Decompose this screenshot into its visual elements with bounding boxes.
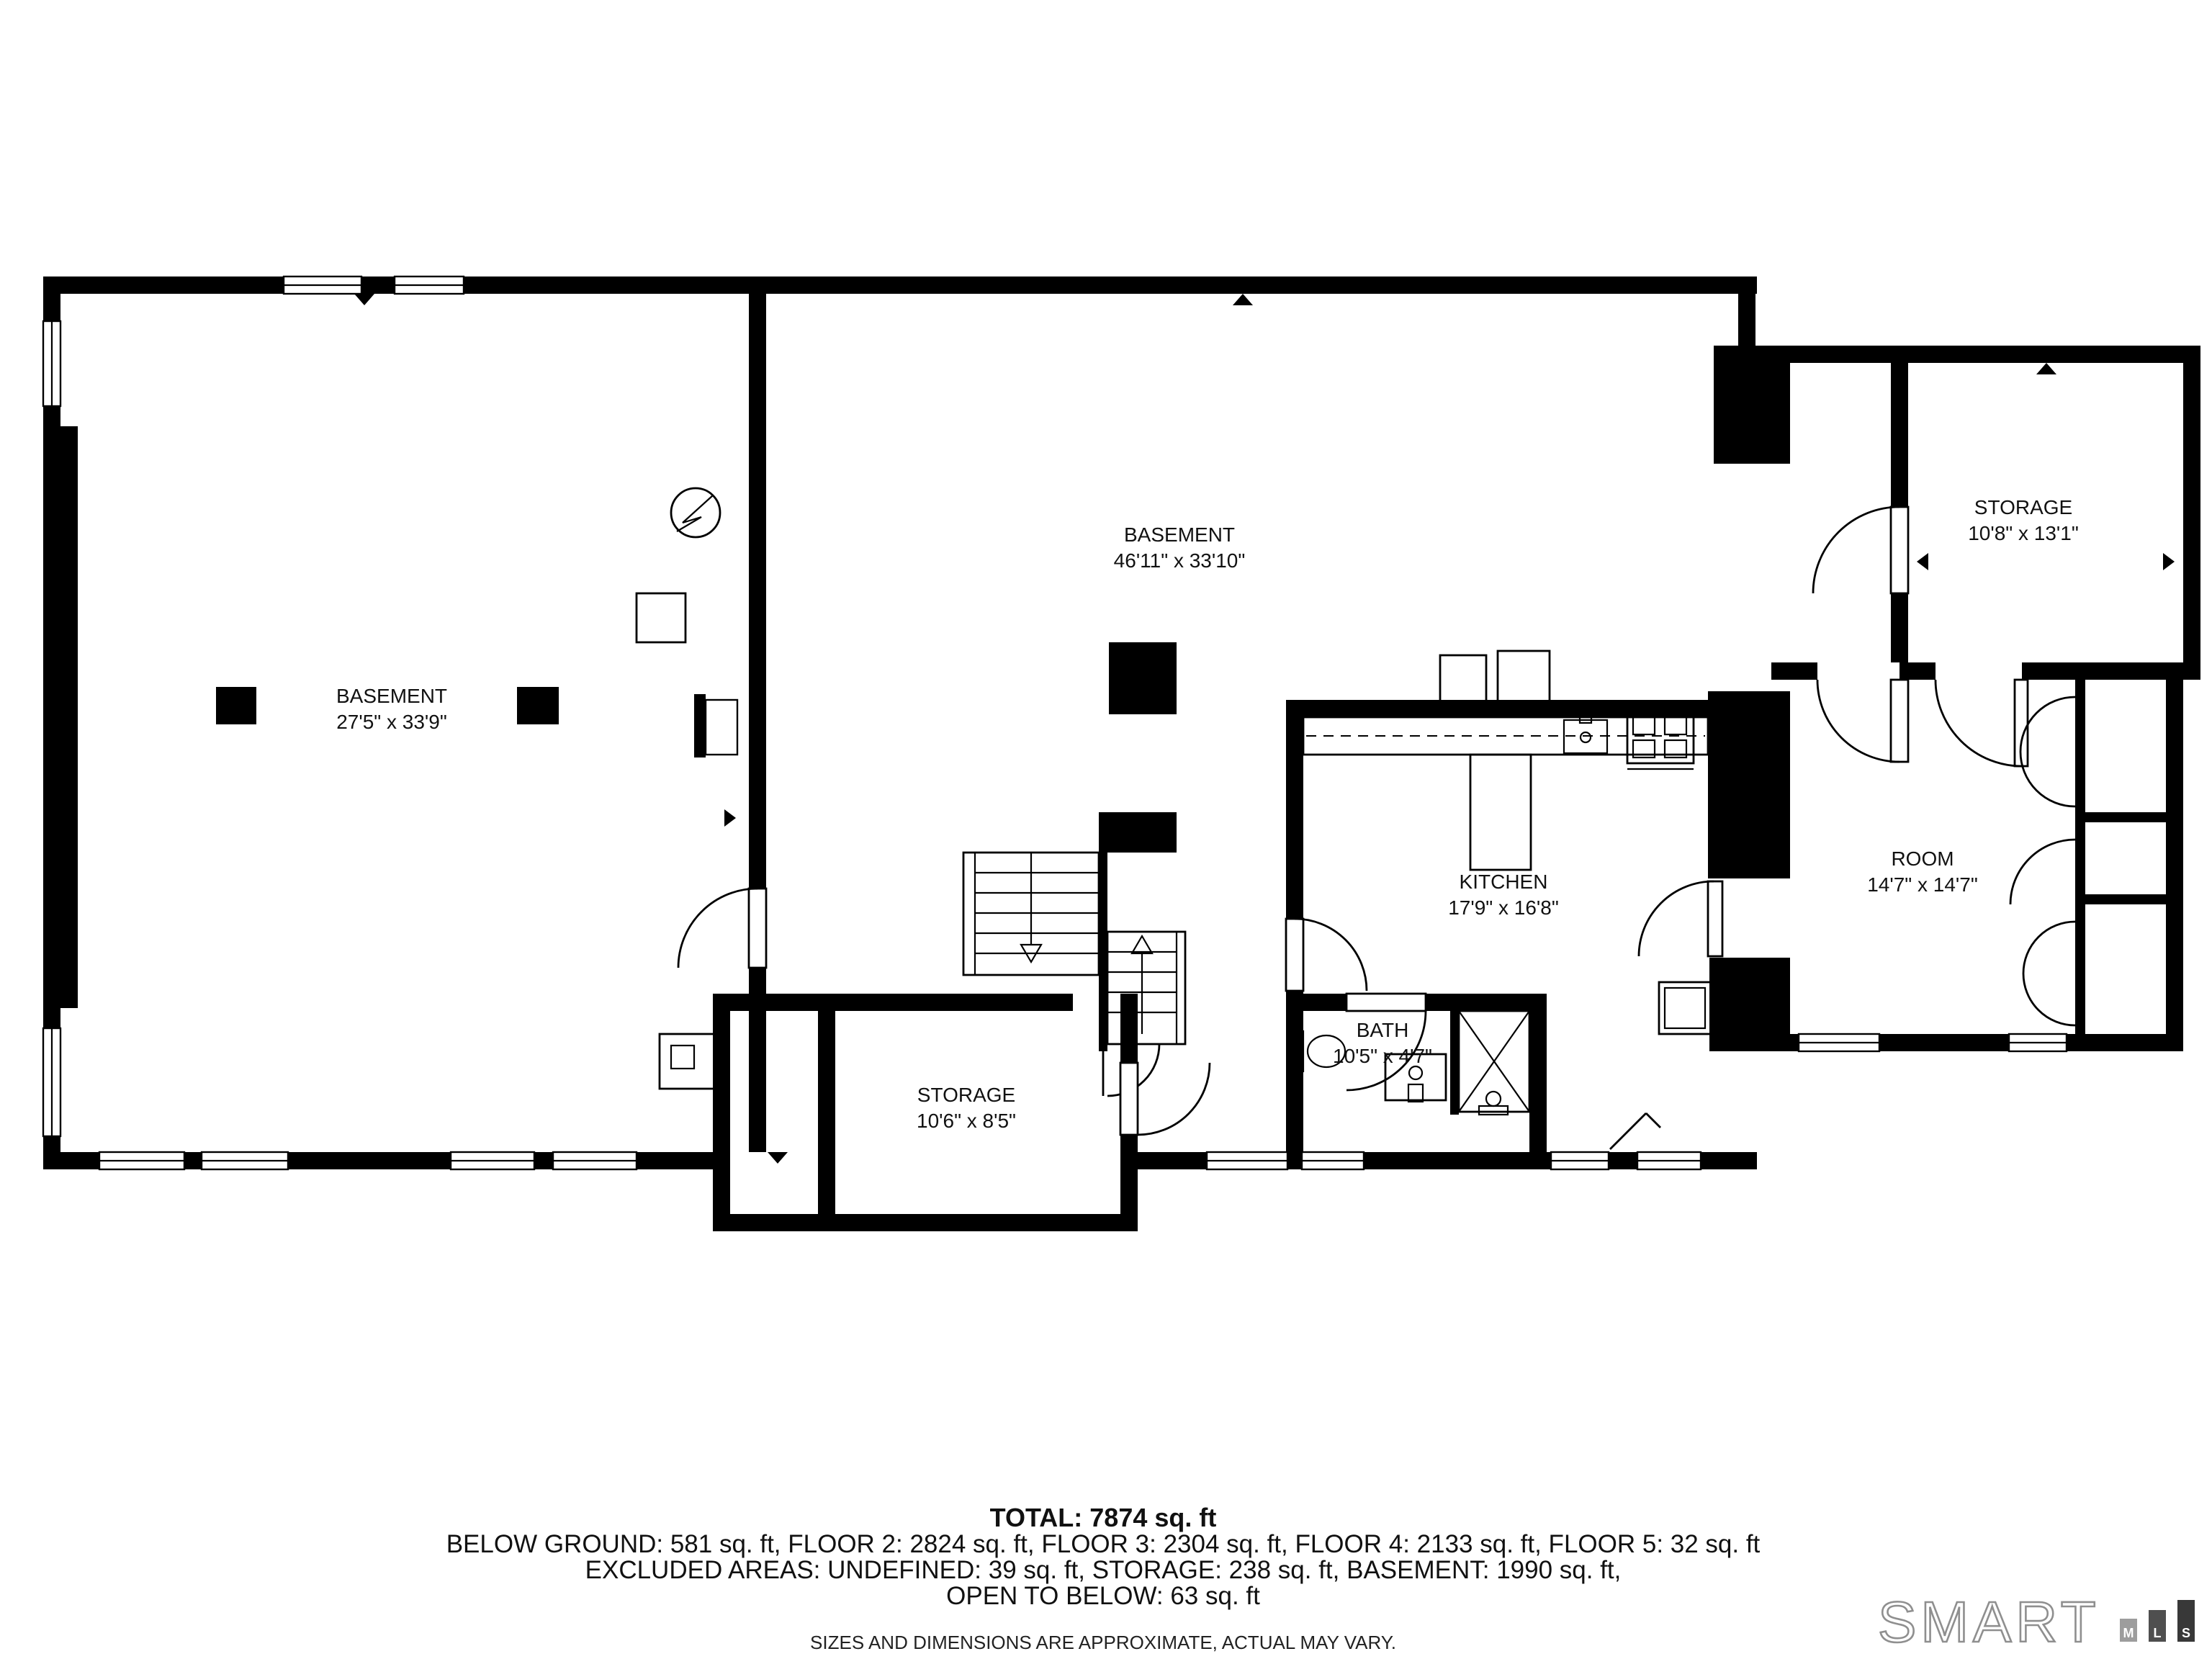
logo-brand-text: SMART (1878, 1590, 2100, 1654)
window (553, 1152, 637, 1169)
room-label-storage-lower: STORAGE (917, 1084, 1015, 1106)
window (2009, 1034, 2067, 1051)
wall-bump-top (713, 994, 1073, 1011)
room-dims-storage-upper: 10'8" x 13'1" (1968, 522, 2079, 544)
summary-excluded: EXCLUDED AREAS: UNDEFINED: 39 sq. ft, ST… (585, 1556, 1622, 1584)
window (1207, 1152, 1287, 1169)
logo-bar-s-label: S (2182, 1626, 2190, 1640)
room-dims-room: 14'7" x 14'7" (1867, 873, 1978, 896)
wall-left-chimney (43, 426, 78, 1008)
wall-stair-block (1099, 812, 1177, 853)
logo-bar-l-label: L (2154, 1626, 2162, 1640)
wall-shower-right (1529, 994, 1547, 1152)
window (43, 321, 60, 406)
wall-bath-top-a (1303, 994, 1346, 1011)
window (451, 1152, 534, 1169)
wall-storage-inner (818, 1011, 835, 1214)
summary-floors: BELOW GROUND: 581 sq. ft, FLOOR 2: 2824 … (446, 1530, 1761, 1558)
room-label-basement-left: BASEMENT (336, 685, 447, 707)
room-label-storage-upper: STORAGE (1974, 496, 2072, 518)
wall-kitchen-left-a (1286, 717, 1303, 919)
floor-plan-image: BASEMENT 27'5" x 33'9" BASEMENT 46'11" x… (0, 0, 2212, 1659)
wall-wing-right-upper (2183, 346, 2200, 680)
room-label-kitchen: KITCHEN (1460, 871, 1548, 893)
wall-wing-right-lower (2166, 662, 2183, 1051)
wall-storage-left-b (1891, 593, 1908, 662)
window (284, 276, 361, 294)
room-dims-basement-center: 46'11" x 33'10" (1114, 549, 1246, 572)
summary-total: TOTAL: 7874 sq. ft (990, 1503, 1217, 1532)
window (99, 1152, 184, 1169)
room-dims-storage-lower: 10'6" x 8'5" (917, 1110, 1016, 1132)
wall-bath-top-b (1426, 994, 1538, 1011)
room-dims-bath: 10'5" x 4'7" (1333, 1045, 1432, 1067)
wall-shower-left (1450, 1011, 1459, 1115)
wall-divider-jog (694, 694, 706, 757)
room-dims-basement-left: 27'5" x 33'9" (336, 711, 447, 733)
disclaimer: SIZES AND DIMENSIONS ARE APPROXIMATE, AC… (810, 1632, 1396, 1653)
room-label-bath: BATH (1357, 1019, 1409, 1041)
wall-bump-left (713, 994, 730, 1231)
logo-bar-m-label: M (2123, 1626, 2134, 1640)
window (1799, 1034, 1879, 1051)
window (43, 1028, 60, 1136)
room-label-basement-center: BASEMENT (1124, 523, 1235, 546)
wall-wing-top (1738, 346, 2200, 363)
window (395, 276, 464, 294)
column (517, 687, 559, 724)
wall-closet (2075, 680, 2085, 1034)
wall-niche (706, 700, 737, 755)
room-label-room: ROOM (1891, 848, 1954, 870)
wall-wing-bottom-a (1709, 1034, 1799, 1051)
wall-room-top-b (1899, 662, 1935, 680)
wall-bump-bottom (713, 1214, 1138, 1231)
window (1551, 1152, 1609, 1169)
wall-kitchen-right-a (1708, 691, 1790, 878)
column (216, 687, 256, 724)
wall-divider-a (749, 276, 766, 889)
wall-room-top-a (1771, 662, 1817, 680)
wall-closet-div2 (2075, 894, 2166, 904)
wall-closet-div1 (2075, 812, 2166, 822)
wall-wing-bottom-c (2067, 1034, 2183, 1051)
wall-wing-bottom-b (1879, 1034, 2009, 1051)
wall-kitchen-right-b (1709, 958, 1790, 1034)
wall-stair-divider (1099, 853, 1107, 1051)
wall-junction-block (1714, 346, 1790, 464)
window (1637, 1152, 1701, 1169)
summary-open-below: OPEN TO BELOW: 63 sq. ft (946, 1582, 1260, 1610)
window (202, 1152, 288, 1169)
room-dims-kitchen: 17'9" x 16'8" (1448, 896, 1559, 919)
column (1109, 642, 1177, 714)
window (1302, 1152, 1364, 1169)
wall-storage-left-a (1891, 363, 1908, 507)
